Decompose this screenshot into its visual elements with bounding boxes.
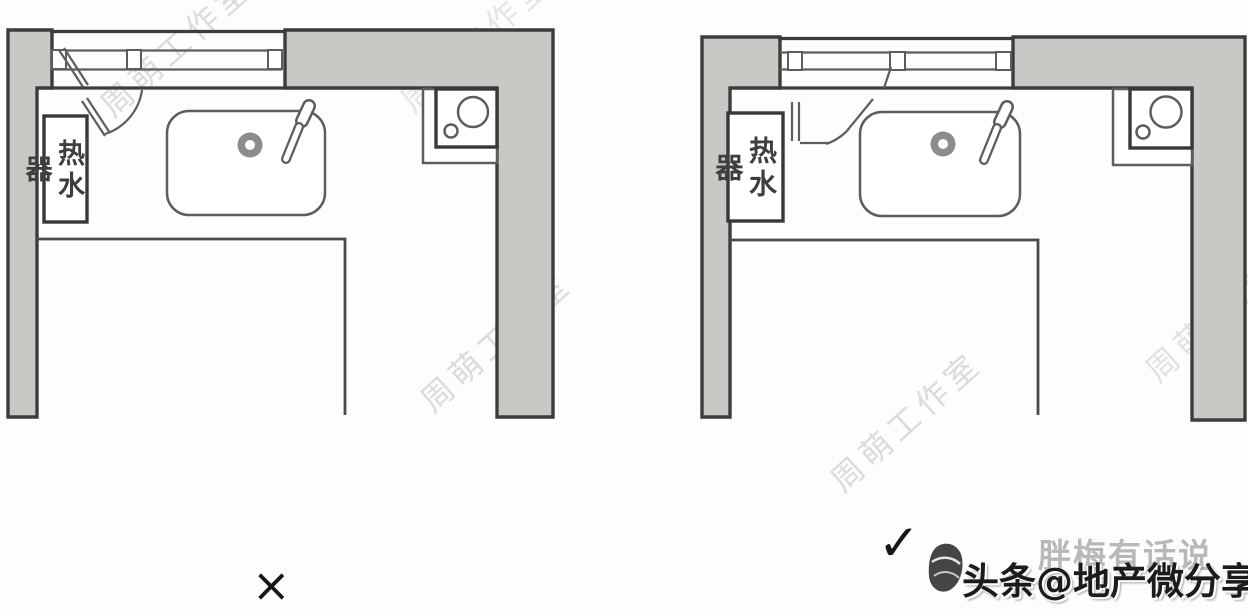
door-swing-arc bbox=[826, 132, 846, 144]
basin-tap bbox=[445, 125, 458, 138]
basin-bowl bbox=[458, 97, 488, 127]
window-jamb bbox=[996, 52, 1011, 70]
wrong-mark: × bbox=[252, 558, 291, 612]
left-wall bbox=[702, 37, 780, 417]
correct-mark: ✓ bbox=[878, 514, 920, 572]
window-jamb bbox=[268, 50, 282, 69]
window-jamb bbox=[127, 50, 141, 69]
window-jamb bbox=[890, 52, 905, 70]
faucet-handle-fill bbox=[1000, 107, 1007, 122]
floorplans-svg bbox=[0, 0, 1248, 616]
basin-bowl bbox=[1151, 97, 1182, 128]
sink-drain-hole bbox=[938, 139, 948, 149]
basin-tap bbox=[1137, 126, 1150, 139]
left-floorplan bbox=[8, 30, 553, 417]
casement-line bbox=[64, 48, 88, 85]
sink-drain-hole bbox=[245, 140, 255, 150]
counter-outline bbox=[37, 239, 345, 415]
credit-text: 头条@地产微分享 bbox=[962, 551, 1248, 605]
water-heater-label: 热水器 bbox=[48, 124, 84, 218]
counter-outline bbox=[730, 240, 1038, 415]
faucet-handle-fill bbox=[302, 106, 309, 121]
window-jamb bbox=[788, 52, 802, 70]
right-floorplan bbox=[702, 37, 1245, 420]
water-heater-label: 热水器 bbox=[734, 121, 778, 217]
right-wall bbox=[285, 30, 553, 417]
floorplan-comparison-image: 周萌工作室 周萌工作室 周萌工作室 周萌工作室 周萌工作室 bbox=[0, 0, 1248, 616]
door-swing-arc bbox=[105, 90, 142, 134]
